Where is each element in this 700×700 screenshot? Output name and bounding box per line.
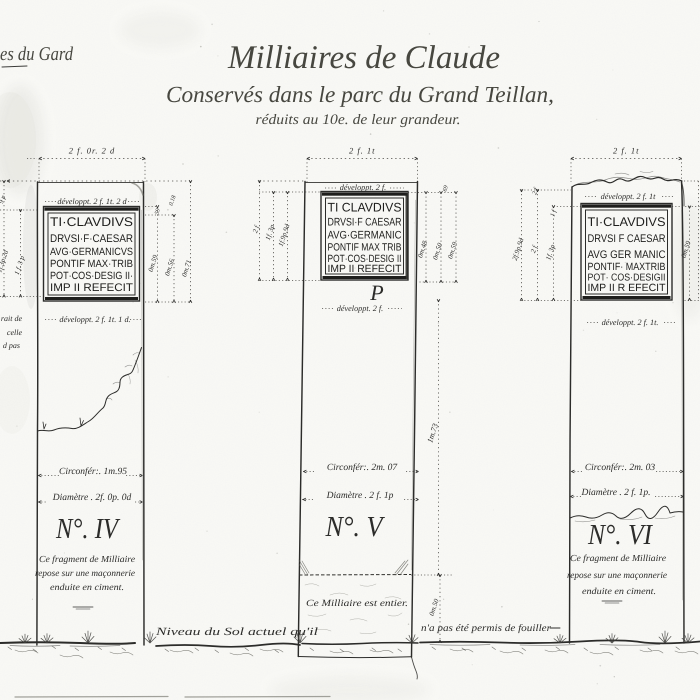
svg-text:DRVSI F CAESAR: DRVSI F CAESAR: [588, 233, 666, 245]
svg-text:Niveau du Sol actuel qu'il: Niveau du Sol actuel qu'il: [155, 626, 318, 638]
svg-text:TI CLAVDIVS: TI CLAVDIVS: [328, 201, 402, 215]
svg-text:Circonfér:. 1m.95: Circonfér:. 1m.95: [59, 467, 127, 477]
svg-text:n'a pas été permis de fouiller: n'a pas été permis de fouiller: [421, 623, 551, 634]
svg-text:d pas: d pas: [3, 341, 20, 350]
svg-text:Circonfér:. 2m. 07: Circonfér:. 2m. 07: [327, 463, 399, 473]
svg-text:IMP II REFECIT: IMP II REFECIT: [328, 263, 403, 275]
svg-text:Ce fragment de Milliaire: Ce fragment de Milliaire: [39, 554, 135, 564]
svg-text:rait de: rait de: [1, 314, 23, 323]
svg-text:P: P: [369, 280, 383, 305]
svg-text:Diamètre . 2f. 0p. 0d: Diamètre . 2f. 0p. 0d: [52, 493, 132, 503]
svg-text:développt. 2 f. 1t: développt. 2 f. 1t: [601, 192, 657, 201]
svg-text:développt. 2 f. 1t. 1 d.: développt. 2 f. 1t. 1 d.: [59, 315, 130, 324]
svg-text:IMP II R EFECIT: IMP II R EFECIT: [588, 282, 667, 294]
svg-text:2 f. 1t: 2 f. 1t: [613, 146, 640, 156]
svg-text:2 f. 1t: 2 f. 1t: [349, 146, 376, 156]
svg-text:développt. 2 f. 1t. 2 d: développt. 2 f. 1t. 2 d: [57, 197, 127, 206]
svg-text:N°. IV: N°. IV: [55, 513, 121, 545]
svg-text:enduite en ciment.: enduite en ciment.: [50, 582, 124, 592]
svg-text:développt. 2 f. 1t.: développt. 2 f. 1t.: [602, 318, 659, 327]
svg-text:repose sur une maçonnerie: repose sur une maçonnerie: [35, 568, 135, 578]
svg-text:TI·CLAVDIVS: TI·CLAVDIVS: [588, 215, 666, 229]
svg-text:Ce Milliaire est entier.: Ce Milliaire est entier.: [306, 599, 408, 609]
svg-text:Diamètre . 2 f. 1p.: Diamètre . 2 f. 1p.: [580, 488, 650, 498]
svg-text:Milliaires de Claude: Milliaires de Claude: [227, 40, 500, 76]
svg-text:celle: celle: [7, 328, 23, 337]
svg-text:N°. V: N°. V: [325, 511, 386, 543]
svg-text:AVG·GERMANIC: AVG·GERMANIC: [328, 230, 402, 242]
svg-text:DRVSI·F CAESAR: DRVSI·F CAESAR: [328, 217, 402, 229]
svg-text:N°. VI: N°. VI: [587, 519, 653, 551]
svg-text:Diamètre . 2 f. 1p: Diamètre . 2 f. 1p: [326, 491, 394, 501]
svg-text:PONTIF MAX·TRIB: PONTIF MAX·TRIB: [50, 258, 133, 270]
svg-text:AVG·GERMANICVS: AVG·GERMANICVS: [50, 246, 133, 258]
svg-text:enduite en ciment.: enduite en ciment.: [582, 586, 656, 596]
svg-text:POT·COS·DESIG II·: POT·COS·DESIG II·: [50, 270, 133, 282]
svg-text:IMP II REFECIT: IMP II REFECIT: [50, 282, 133, 294]
svg-text:développt. 2 f.: développt. 2 f.: [340, 183, 386, 192]
svg-text:développt. 2 f.: développt. 2 f.: [337, 304, 383, 313]
svg-text:es du Gard: es du Gard: [0, 44, 73, 65]
svg-text:AVG GER MANIC: AVG GER MANIC: [588, 249, 666, 261]
svg-text:réduits au 10e. de leur grande: réduits au 10e. de leur grandeur.: [256, 112, 461, 128]
svg-text:PONTIF MAX TRIB: PONTIF MAX TRIB: [328, 242, 402, 254]
svg-text:TI·CLAVDIVS: TI·CLAVDIVS: [50, 215, 133, 229]
svg-text:Conservés dans le parc du Gran: Conservés dans le parc du Grand Teillan,: [166, 82, 554, 107]
svg-text:PONTIF· MAXTRIB: PONTIF· MAXTRIB: [588, 261, 666, 273]
svg-text:Circonfér:. 2m. 03: Circonfér:. 2m. 03: [585, 463, 656, 473]
svg-text:repose sur une maçonnerie: repose sur une maçonnerie: [567, 570, 667, 580]
svg-text:DRVSI·F·CAESAR: DRVSI·F·CAESAR: [50, 233, 133, 245]
svg-text:2 f. 0r. 2 d: 2 f. 0r. 2 d: [69, 146, 115, 156]
svg-text:Ce fragment de Milliaire: Ce fragment de Milliaire: [570, 553, 666, 563]
